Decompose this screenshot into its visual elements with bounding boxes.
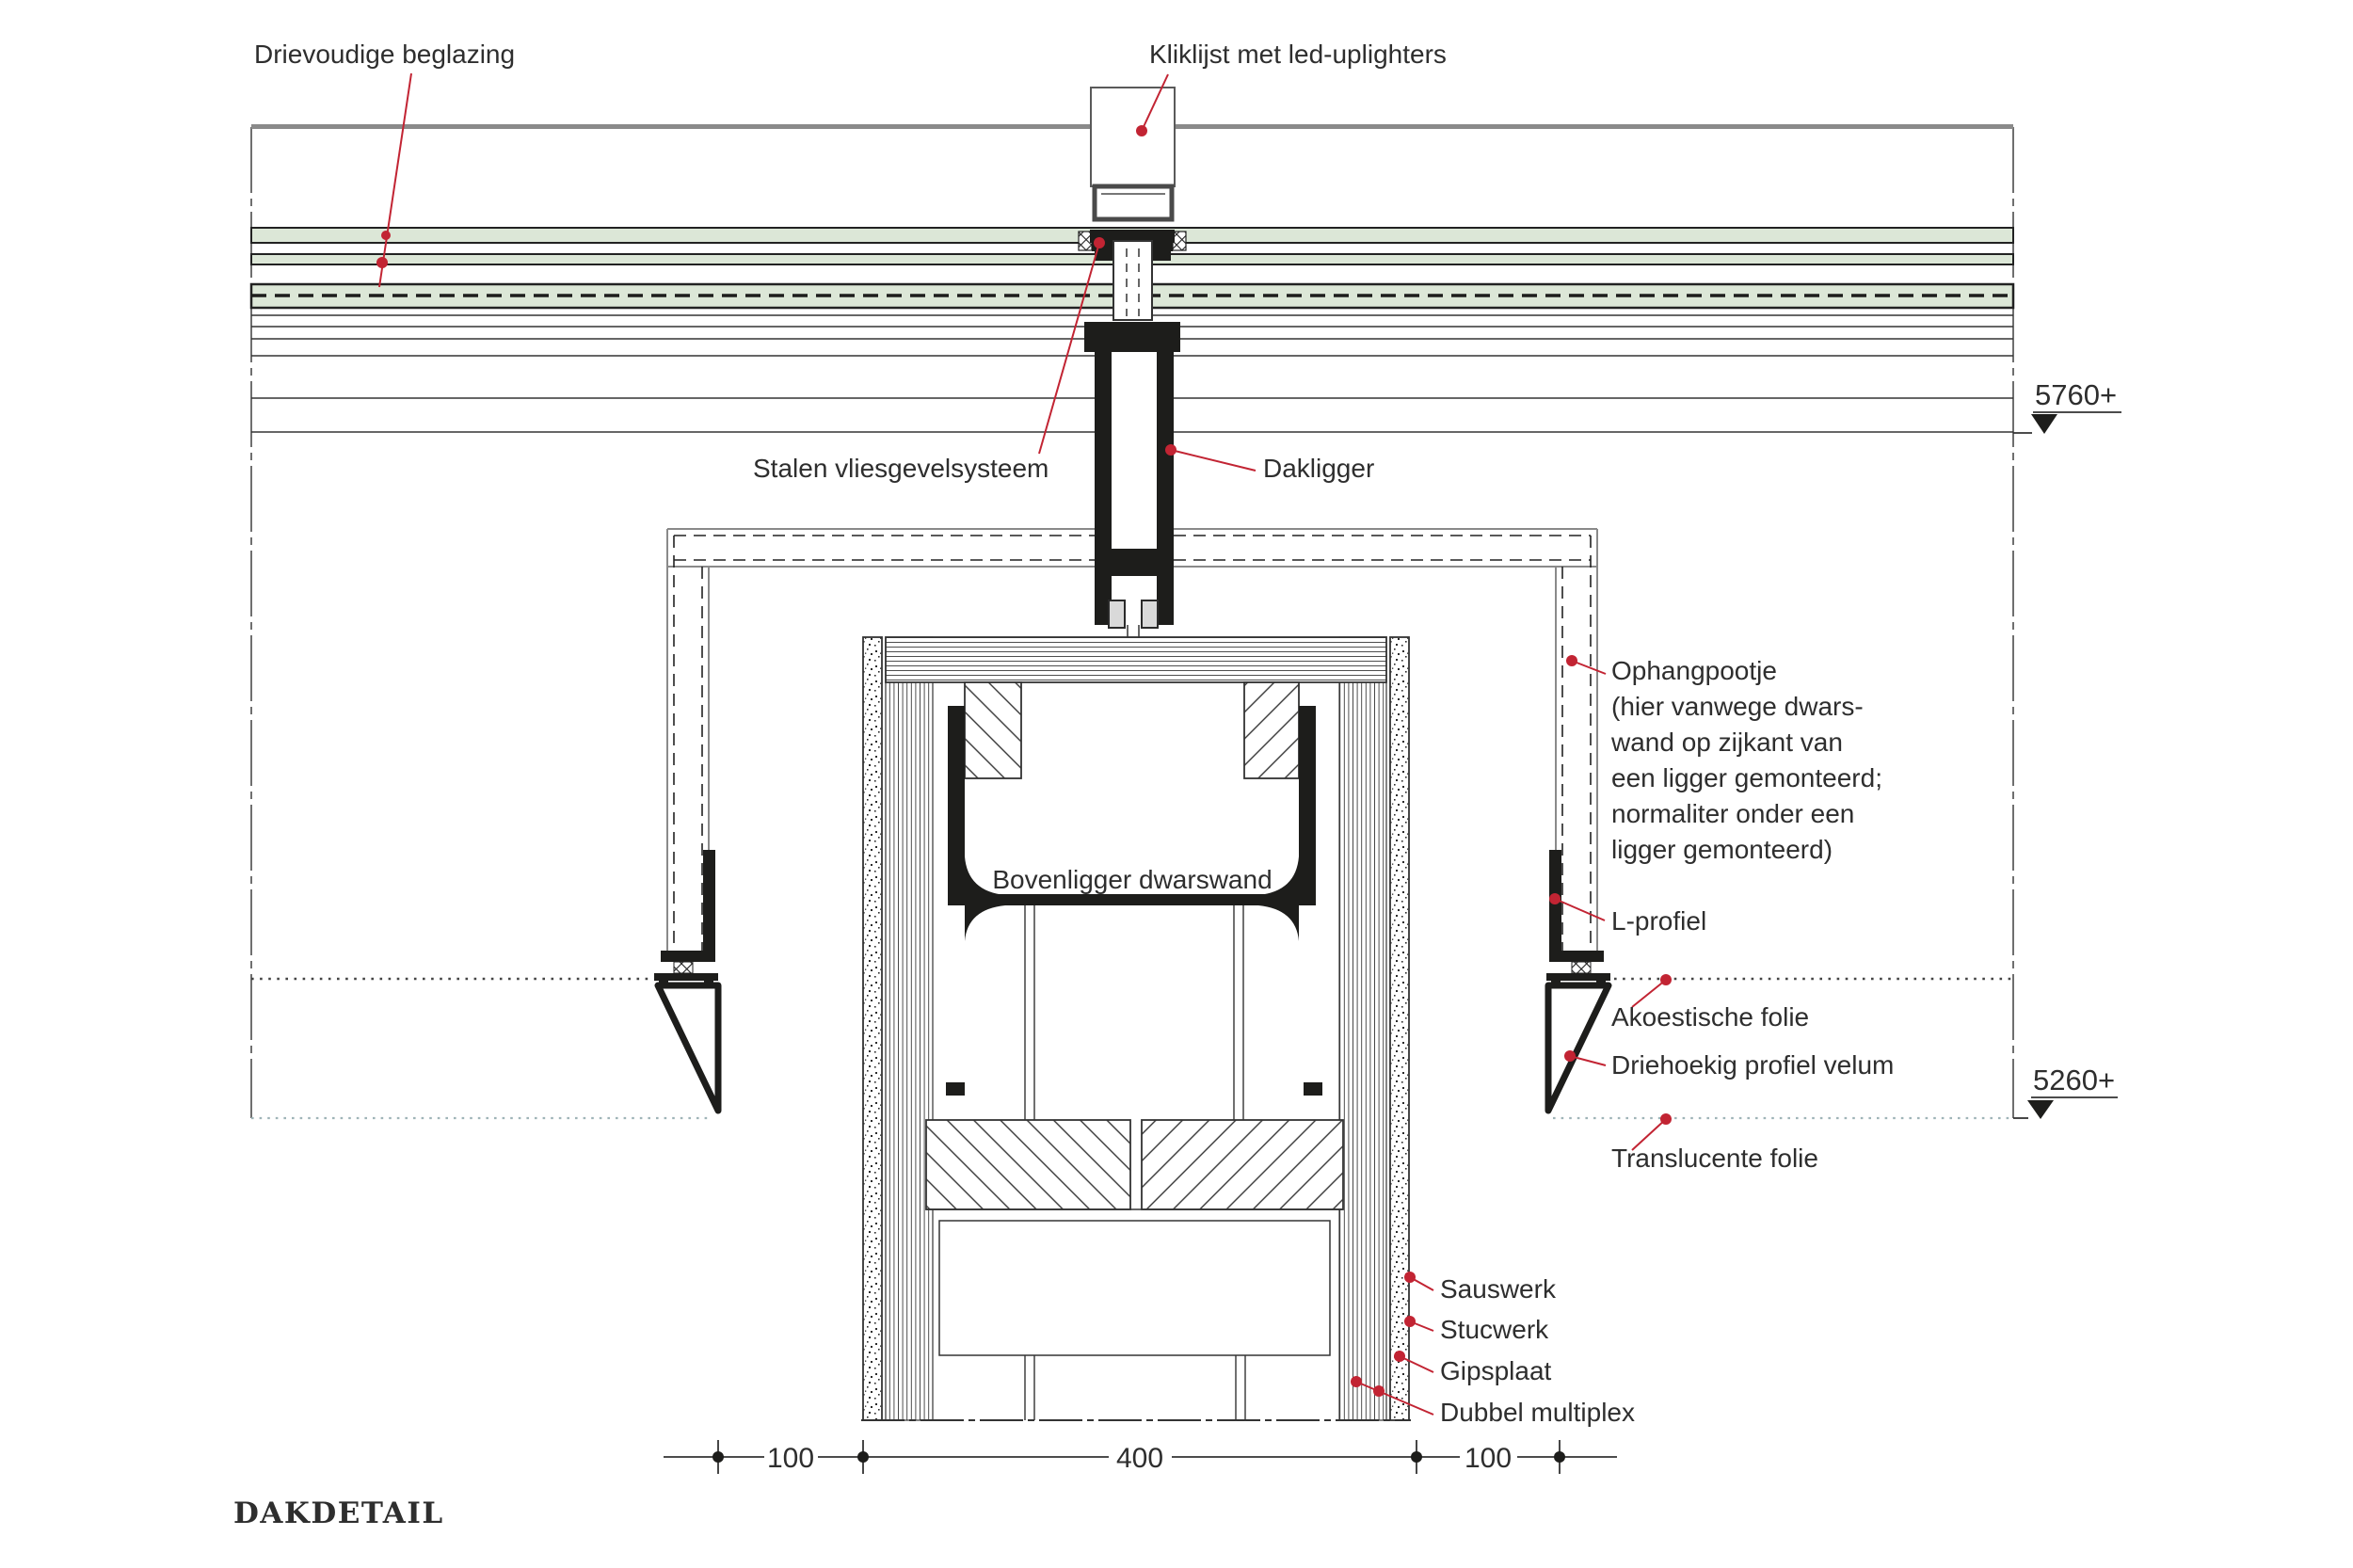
kliklijst-assembly [1091, 88, 1175, 219]
multiplex-layer-left [886, 637, 933, 1420]
leader-dot [1549, 893, 1561, 904]
kliklijst-box [1091, 88, 1175, 186]
leader-dakligger [1171, 450, 1256, 471]
velum-bar-right [1546, 973, 1610, 981]
drawing-title: DAKDETAIL [233, 1496, 444, 1530]
leader-dot [1564, 1050, 1576, 1062]
dimension-right: 100 [1465, 1443, 1512, 1474]
label-ophangpootje-line2: (hier vanwege dwars- [1611, 692, 1864, 721]
roof-top-edge-left [251, 124, 1091, 129]
lower-panel [939, 1221, 1330, 1355]
elevation-arrow-icon [2027, 1100, 2054, 1119]
leader-dot [1566, 655, 1577, 666]
elevation-arrow-icon [2031, 414, 2057, 434]
blocking-upper-right [1244, 682, 1299, 778]
label-driehoekig-profiel-velum: Driehoekig profiel velum [1611, 1050, 1894, 1080]
label-gipsplaat: Gipsplaat [1440, 1356, 1552, 1385]
hanger-channel-left [667, 529, 709, 954]
label-ophangpootje-line3: wand op zijkant van [1610, 728, 1843, 757]
leader-dot [1660, 974, 1672, 985]
leader-dot [1136, 125, 1147, 136]
l-profile-left [661, 850, 715, 962]
label-ophangpootje-line5: normaliter onder een [1611, 799, 1854, 828]
annotation-labels: Drievoudige beglazing Kliklijst met led-… [254, 40, 1894, 1427]
stucwerk-layer-left [863, 637, 882, 1420]
label-ophangpootje-line4: een ligger gemonteerd; [1611, 763, 1882, 792]
bolt-right [1304, 1082, 1322, 1096]
leader-dot [1373, 1385, 1385, 1397]
leader-dot [1394, 1351, 1405, 1362]
leader-dot [1404, 1316, 1416, 1327]
hanger-block-right [1142, 600, 1158, 628]
kliklijst-profile-tube [1095, 186, 1172, 219]
label-kliklijst: Kliklijst met led-uplighters [1149, 40, 1447, 69]
leader-dot [1094, 237, 1105, 248]
leader-dot [376, 257, 388, 268]
dimension-middle: 400 [1116, 1443, 1163, 1474]
blocking-lower-right [1142, 1120, 1343, 1209]
label-akoestische-folie: Akoestische folie [1611, 1002, 1809, 1032]
label-ophangpootje-line6: ligger gemonteerd) [1611, 835, 1833, 864]
roof-top-edge-right [1175, 124, 2013, 129]
wall-top-plate [886, 637, 1386, 682]
clamp-foot-right [1153, 250, 1171, 261]
leader-dot [1660, 1113, 1672, 1125]
leader-dot [1404, 1272, 1416, 1283]
label-ophangpootje-line1: Ophangpootje [1611, 656, 1777, 685]
label-drievoudige-beglazing: Drievoudige beglazing [254, 40, 515, 69]
gasket-right [1173, 232, 1186, 250]
cross-wall [861, 637, 1411, 1420]
gasket-left [1079, 232, 1092, 250]
l-profile-right [1549, 850, 1604, 962]
beam-top-plate [1084, 322, 1180, 352]
l-gasket-right [1572, 962, 1591, 973]
elevation-lower-value: 5260+ [2033, 1064, 2115, 1096]
blocking-upper-left [965, 682, 1021, 778]
dimension-left: 100 [767, 1443, 814, 1474]
label-bovenligger-dwarswand: Bovenligger dwarswand [992, 865, 1272, 894]
label-stucwerk: Stucwerk [1440, 1315, 1549, 1344]
label-dakligger: Dakligger [1263, 454, 1374, 483]
elevation-marker-5760: 5760+ [2013, 378, 2121, 434]
blocking-lower-left [926, 1120, 1130, 1209]
hanger-arm-right [1174, 529, 1597, 567]
roof-detail-drawing: 5760+ 5260+ 100 400 100 Drie [0, 0, 2353, 1568]
multiplex-layer-right [1339, 637, 1386, 1420]
beam-flange-right [1157, 352, 1174, 625]
leader-dot [1165, 444, 1176, 456]
hanger-channel-right [1556, 529, 1597, 954]
triangular-velum-profile-left [658, 985, 718, 1111]
label-l-profiel: L-profiel [1611, 906, 1706, 936]
label-ophangpootje-block: Ophangpootje (hier vanwege dwars- wand o… [1610, 656, 1882, 864]
triangular-velum-profile-right [1548, 985, 1609, 1111]
label-stalen-vliesgevelsysteem: Stalen vliesgevelsysteem [753, 454, 1048, 483]
beam-cross-piece [1112, 549, 1157, 576]
hanger-arm-left [667, 529, 1095, 567]
bolt-left [946, 1082, 965, 1096]
velum-bar-left [654, 973, 718, 981]
beam-flange-left [1095, 352, 1112, 625]
detail-drawing-canvas: 5760+ 5260+ 100 400 100 Drie [0, 0, 2353, 1568]
leader-lines [376, 73, 1672, 1415]
elevation-upper-value: 5760+ [2035, 378, 2117, 411]
label-translucente-folie: Translucente folie [1611, 1144, 1818, 1173]
stucwerk-layer-right [1390, 637, 1409, 1420]
elevation-marker-5260: 5260+ [2013, 1064, 2118, 1119]
leader-dot [381, 231, 391, 240]
l-gasket-left [674, 962, 693, 973]
hanger-block-left [1109, 600, 1125, 628]
dimension-chain: 100 400 100 [664, 1440, 1617, 1474]
label-dubbel-multiplex: Dubbel multiplex [1440, 1398, 1635, 1427]
leader-dot [1351, 1376, 1362, 1387]
suspension-system [654, 529, 1610, 1111]
label-sauswerk: Sauswerk [1440, 1274, 1557, 1304]
dakligger-beam [1070, 322, 1195, 660]
mullion-profile [1113, 241, 1152, 320]
folie-lines [251, 979, 2013, 1118]
